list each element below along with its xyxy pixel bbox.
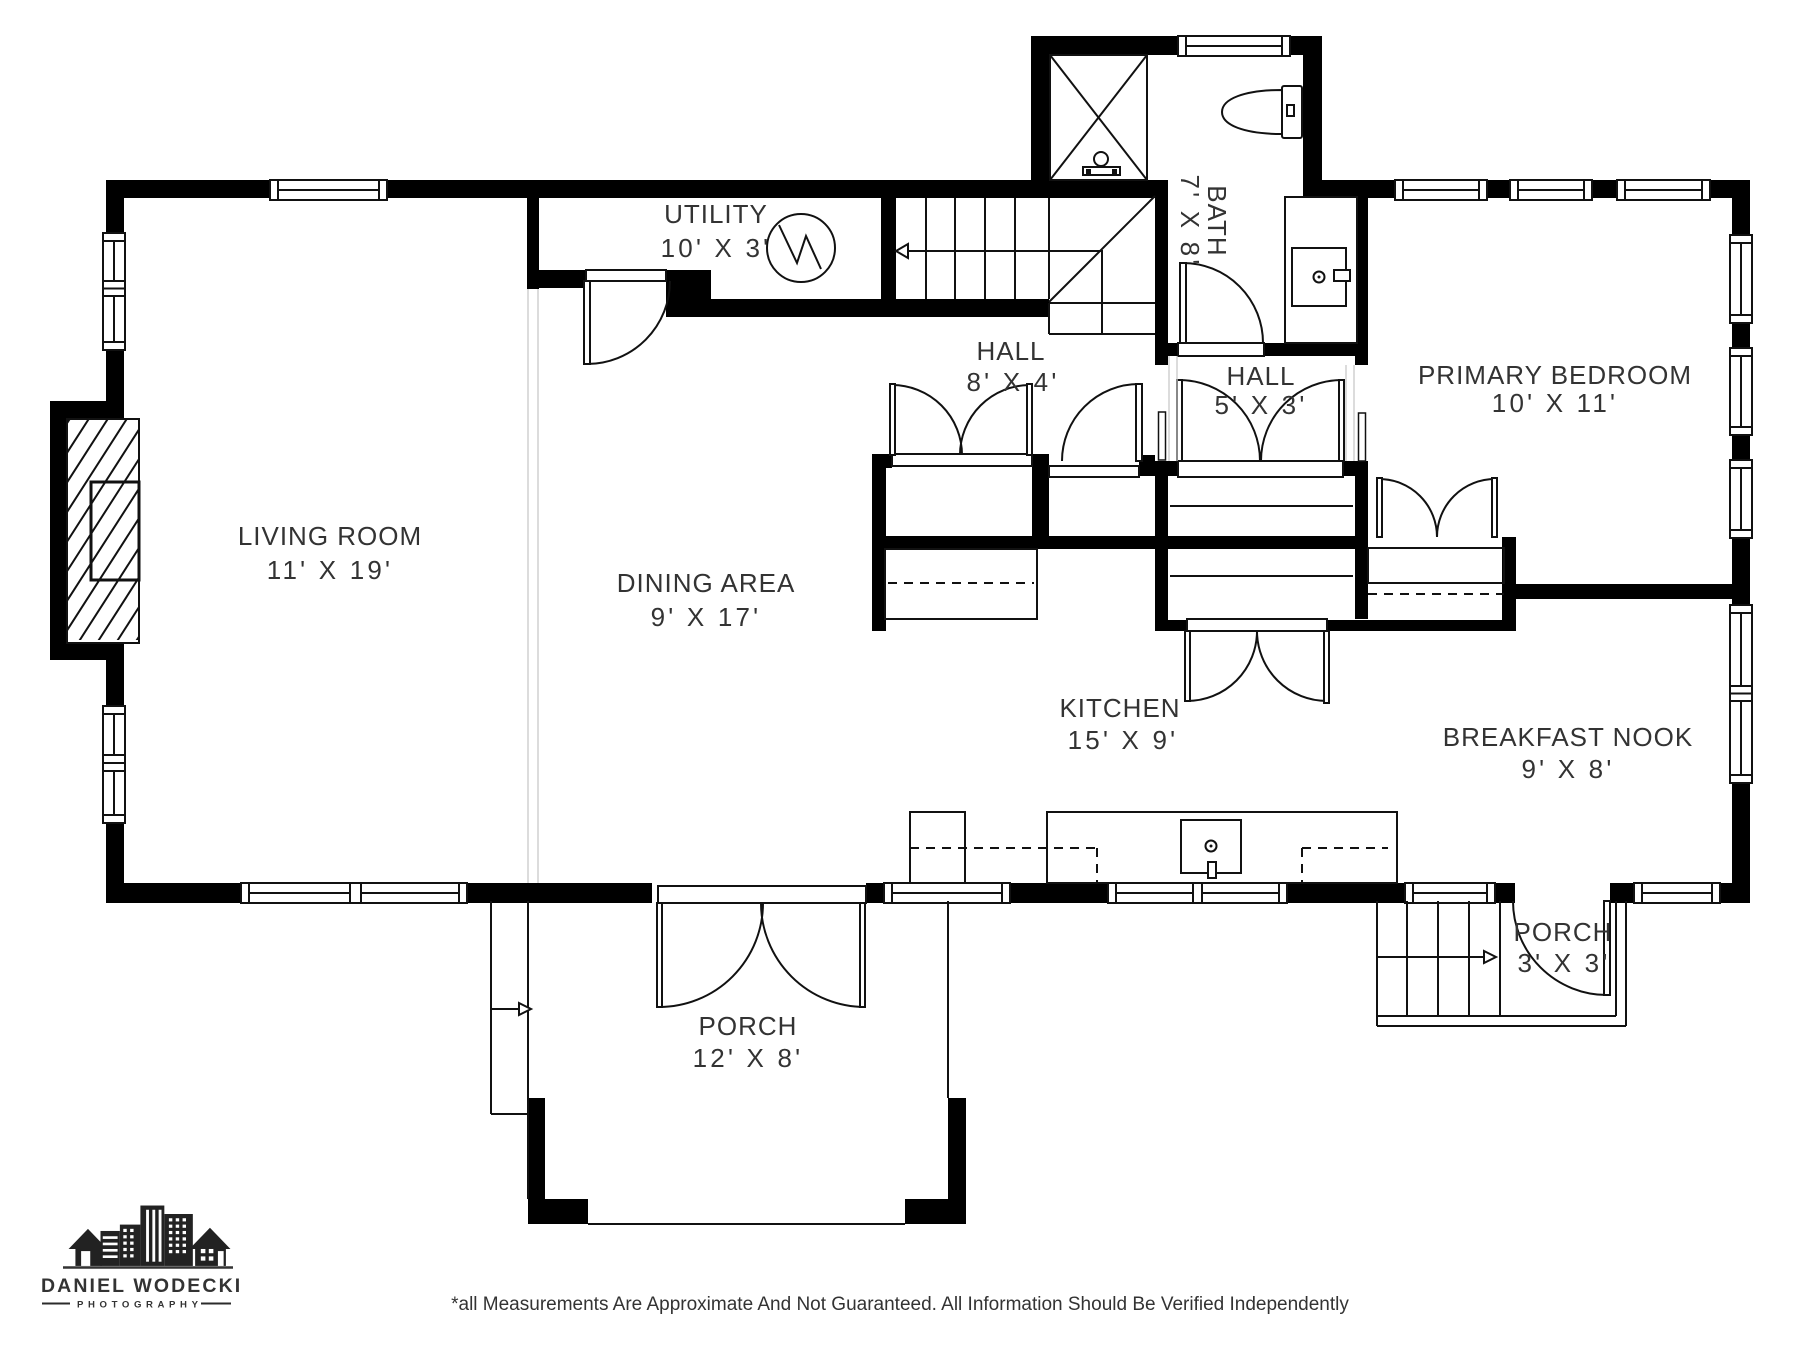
svg-text:UTILITY: UTILITY <box>664 199 768 229</box>
svg-text:HALL: HALL <box>1226 361 1295 391</box>
svg-text:PRIMARY BEDROOM: PRIMARY BEDROOM <box>1418 360 1692 390</box>
svg-text:PORCH: PORCH <box>1514 917 1613 947</box>
svg-text:7' X 8': 7' X 8' <box>1175 174 1205 267</box>
svg-text:PHOTOGRAPHY: PHOTOGRAPHY <box>77 1300 203 1311</box>
svg-text:PORCH: PORCH <box>699 1011 798 1041</box>
svg-text:9' X 17': 9' X 17' <box>651 602 762 632</box>
svg-text:BATH: BATH <box>1202 185 1232 256</box>
svg-text:12' X 8': 12' X 8' <box>693 1043 804 1073</box>
svg-text:BREAKFAST NOOK: BREAKFAST NOOK <box>1443 722 1693 752</box>
svg-text:DANIEL WODECKI: DANIEL WODECKI <box>41 1275 242 1297</box>
svg-text:3' X 3': 3' X 3' <box>1517 948 1610 978</box>
svg-text:KITCHEN: KITCHEN <box>1059 693 1180 723</box>
svg-text:15' X 9': 15' X 9' <box>1068 725 1179 755</box>
svg-text:10' X 11': 10' X 11' <box>1492 388 1618 418</box>
svg-text:8' X 4': 8' X 4' <box>966 367 1059 397</box>
svg-text:11' X 19': 11' X 19' <box>267 555 393 585</box>
svg-text:10' X 3': 10' X 3' <box>661 233 772 263</box>
svg-text:5' X 3': 5' X 3' <box>1214 390 1307 420</box>
svg-text:LIVING ROOM: LIVING ROOM <box>238 521 422 551</box>
svg-text:HALL: HALL <box>976 336 1045 366</box>
svg-text:9' X 8': 9' X 8' <box>1521 754 1614 784</box>
svg-text:DINING AREA: DINING AREA <box>617 568 796 598</box>
svg-text:*all Measurements Are Approxim: *all Measurements Are Approximate And No… <box>451 1294 1349 1315</box>
